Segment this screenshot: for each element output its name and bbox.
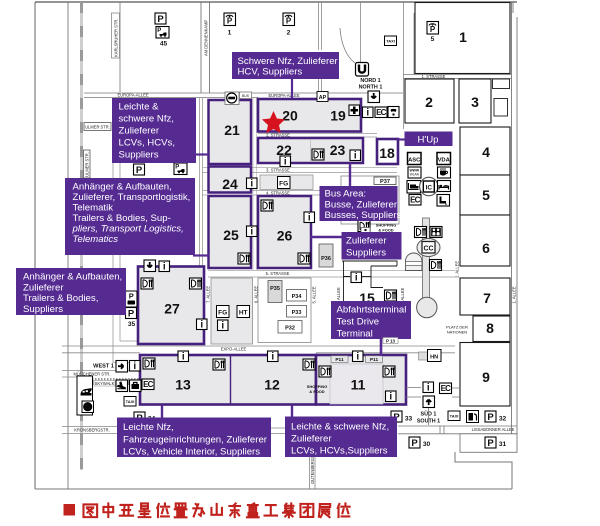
svg-text:33: 33: [405, 416, 413, 423]
svg-text:32: 32: [499, 416, 507, 423]
svg-text:6: 6: [482, 240, 490, 256]
svg-text:pliers, Transport Logistics,: pliers, Transport Logistics,: [72, 224, 184, 235]
svg-text:30: 30: [423, 441, 431, 448]
svg-text:ASC: ASC: [408, 158, 421, 164]
svg-text:VDA: VDA: [438, 158, 451, 164]
svg-text:EXPO-ALLEE: EXPO-ALLEE: [221, 347, 247, 352]
svg-text:Busses, Suppliers: Busses, Suppliers: [325, 210, 402, 221]
svg-text:Zulieferer: Zulieferer: [346, 236, 387, 247]
svg-text:26: 26: [277, 228, 293, 244]
svg-text:Suppliers: Suppliers: [346, 248, 386, 259]
svg-text:NORTH 1: NORTH 1: [359, 85, 383, 91]
svg-text:7. ALLEE: 7. ALLEE: [205, 286, 210, 303]
svg-text:Suppliers: Suppliers: [23, 304, 63, 315]
svg-text:LCVs, HCVs,: LCVs, HCVs,: [119, 138, 176, 149]
svg-text:4. STRASSE: 4. STRASSE: [266, 190, 290, 195]
svg-text:5: 5: [482, 187, 490, 203]
svg-text:HT: HT: [239, 310, 248, 317]
svg-text:FG: FG: [279, 181, 288, 188]
svg-text:LISSABONNER ALLEE: LISSABONNER ALLEE: [472, 427, 515, 432]
svg-text:Zulieferer: Zulieferer: [291, 434, 332, 445]
svg-text:LCVs, HCVs,Suppliers: LCVs, HCVs,Suppliers: [291, 446, 388, 457]
svg-text:H'Up: H'Up: [417, 135, 438, 146]
svg-text:AP: AP: [319, 95, 327, 101]
svg-text:Test Drive: Test Drive: [337, 317, 380, 328]
svg-text:20: 20: [282, 108, 298, 124]
svg-text:FG: FG: [218, 310, 227, 317]
svg-text:Leichte Nfz,: Leichte Nfz,: [123, 422, 174, 433]
svg-text:Leichte &: Leichte &: [119, 102, 160, 113]
svg-text:19: 19: [330, 108, 346, 124]
svg-text:2: 2: [287, 30, 291, 37]
svg-text:P 13: P 13: [386, 338, 396, 343]
svg-text:SKYWALK: SKYWALK: [95, 381, 115, 386]
svg-text:3: 3: [471, 94, 479, 110]
svg-text:2. STRASSE: 2. STRASSE: [266, 132, 290, 137]
svg-text:25: 25: [223, 227, 239, 243]
svg-text:Zulieferer: Zulieferer: [23, 282, 64, 293]
svg-text:3. STRASSE: 3. STRASSE: [266, 168, 290, 173]
svg-text:LCVs, Vehicle Interior, Suppli: LCVs, Vehicle Interior, Suppliers: [123, 447, 260, 458]
svg-text:Telematics: Telematics: [73, 234, 119, 245]
svg-text:23: 23: [330, 142, 346, 158]
svg-text:P36: P36: [321, 256, 331, 262]
svg-text:2: 2: [425, 94, 433, 110]
svg-text:P37: P37: [380, 179, 390, 185]
svg-text:BUS: BUS: [242, 94, 250, 98]
svg-text:4: 4: [482, 144, 490, 160]
svg-text:Bus Area:: Bus Area:: [325, 189, 367, 200]
svg-text:13: 13: [175, 377, 191, 393]
svg-text:EUROPA-ALLEE: EUROPA-ALLEE: [117, 92, 148, 97]
svg-text:1: 1: [228, 30, 232, 37]
svg-text:8: 8: [486, 320, 494, 336]
svg-text:ULMER STR.: ULMER STR.: [85, 124, 110, 129]
svg-text:AM DENNENKAMP: AM DENNENKAMP: [204, 20, 209, 56]
svg-text:Telematik: Telematik: [73, 203, 114, 214]
svg-text:Schwere Nfz, Zulieferer: Schwere Nfz, Zulieferer: [238, 56, 339, 67]
svg-text:12: 12: [264, 377, 280, 393]
svg-text:ULMER STR.: ULMER STR.: [84, 152, 89, 177]
svg-text:Abfahrtsterminal: Abfahrtsterminal: [337, 305, 407, 316]
svg-text:EUROPA-ALLEE: EUROPA-ALLEE: [268, 93, 299, 98]
svg-text:Trailers & Bodies,: Trailers & Bodies,: [23, 293, 98, 304]
svg-text:CC: CC: [423, 246, 433, 253]
svg-text:5: 5: [431, 36, 435, 43]
svg-text:KARLSRUHER STR.: KARLSRUHER STR.: [114, 19, 119, 57]
svg-text:2. ALLEE: 2. ALLEE: [454, 261, 459, 278]
svg-text:Busse, Zulieferer: Busse, Zulieferer: [325, 199, 398, 210]
svg-text:ALLEE: ALLEE: [400, 287, 405, 300]
svg-text:P11: P11: [370, 357, 379, 363]
svg-text:P35: P35: [270, 286, 280, 292]
svg-text:NATIONEN: NATIONEN: [447, 330, 467, 335]
svg-text:P32: P32: [285, 326, 295, 332]
svg-text:Anhänger & Aufbauten,: Anhänger & Aufbauten,: [73, 182, 172, 193]
svg-text:P33: P33: [292, 310, 302, 316]
svg-text:KRONSBERGSTR.: KRONSBERGSTR.: [74, 428, 110, 433]
svg-text:P11: P11: [335, 357, 344, 363]
svg-text:Anhänger & Aufbauten,: Anhänger & Aufbauten,: [23, 272, 122, 283]
svg-text:Suppliers: Suppliers: [119, 150, 159, 161]
svg-text:45: 45: [160, 41, 168, 48]
svg-text:WEST 1: WEST 1: [93, 364, 114, 370]
svg-text:7: 7: [483, 290, 491, 306]
svg-text:Terminal: Terminal: [337, 329, 373, 340]
svg-text:HN: HN: [430, 355, 438, 361]
svg-text:P34: P34: [292, 294, 303, 300]
svg-text:21: 21: [224, 122, 240, 138]
svg-text:1: 1: [459, 29, 467, 45]
svg-text:Trailers & Bodies, Sup-: Trailers & Bodies, Sup-: [73, 213, 171, 224]
svg-text:31: 31: [499, 441, 507, 448]
svg-text:Zulieferer, Transportlogistik,: Zulieferer, Transportlogistik,: [73, 192, 191, 203]
svg-text:& FOOD: & FOOD: [378, 228, 393, 233]
svg-text:& FOOD: & FOOD: [309, 389, 324, 394]
svg-text:HCV, Suppliers: HCV, Suppliers: [238, 67, 303, 78]
svg-text:18: 18: [379, 145, 395, 161]
svg-text:6. ALLEE: 6. ALLEE: [253, 286, 258, 303]
svg-text:5. ALLEE: 5. ALLEE: [311, 286, 316, 303]
svg-text:11: 11: [351, 377, 366, 393]
svg-text:1. ALLEE: 1. ALLEE: [511, 286, 516, 303]
svg-text:Zulieferer: Zulieferer: [119, 126, 160, 137]
svg-text:24: 24: [222, 176, 238, 192]
svg-text:ALLEE: ALLEE: [336, 287, 341, 300]
svg-text:9: 9: [482, 369, 490, 385]
svg-text:Fahrzeugeinrichtungen, Zuliefe: Fahrzeugeinrichtungen, Zulieferer: [123, 434, 268, 445]
svg-text:5. STRASSE: 5. STRASSE: [266, 271, 290, 276]
svg-text:27: 27: [164, 301, 180, 317]
svg-text:1. STRASSE: 1. STRASSE: [422, 74, 446, 79]
svg-text:schwere Nfz,: schwere Nfz,: [119, 114, 174, 125]
svg-text:Leichte & schwere Nfz,: Leichte & schwere Nfz,: [291, 422, 389, 433]
svg-text:IC: IC: [426, 185, 433, 192]
svg-text:NORD 1: NORD 1: [360, 78, 380, 84]
svg-text:35: 35: [128, 321, 136, 328]
